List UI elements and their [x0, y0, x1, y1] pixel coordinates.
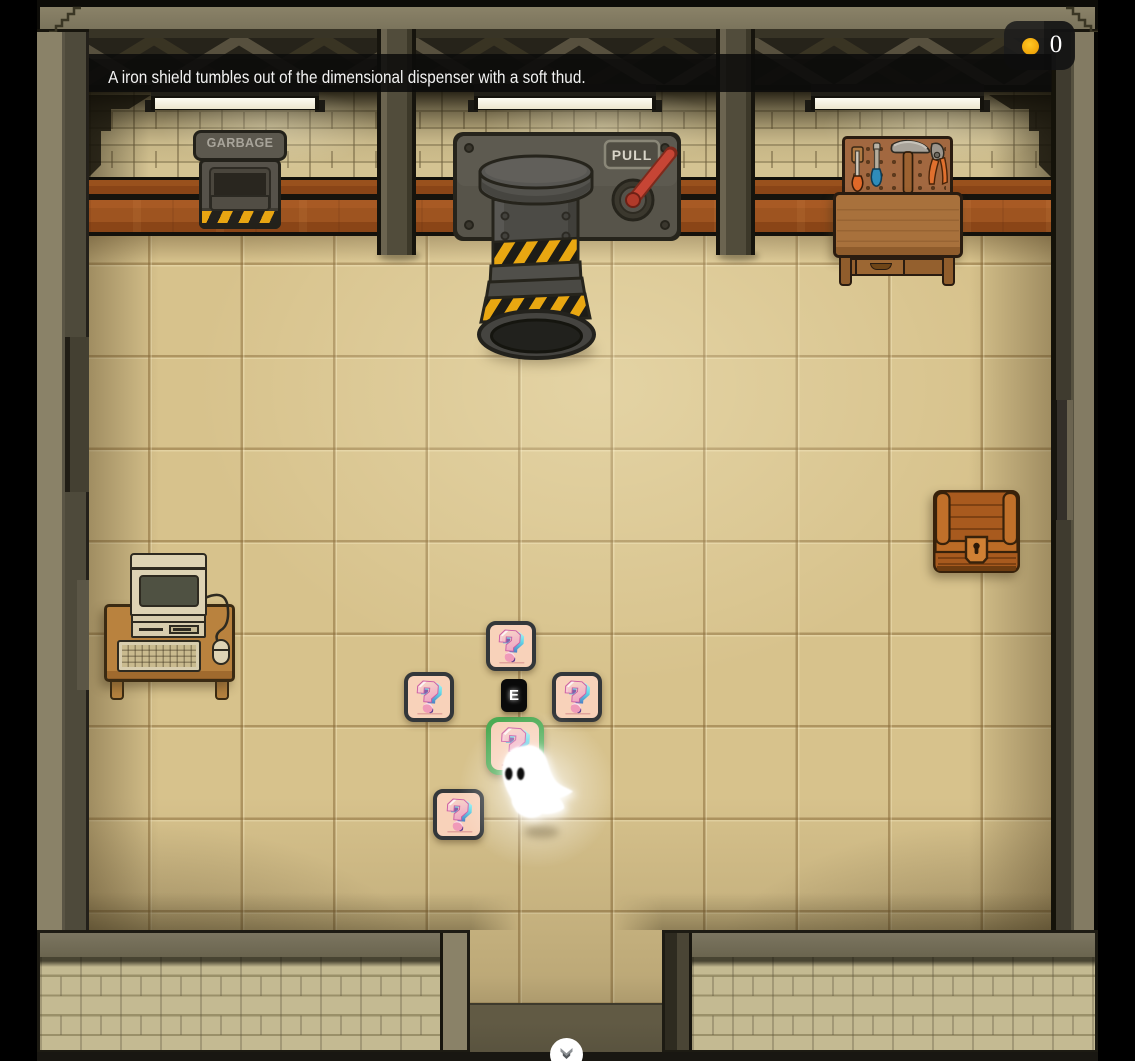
svg-text:PULL: PULL — [612, 147, 653, 163]
